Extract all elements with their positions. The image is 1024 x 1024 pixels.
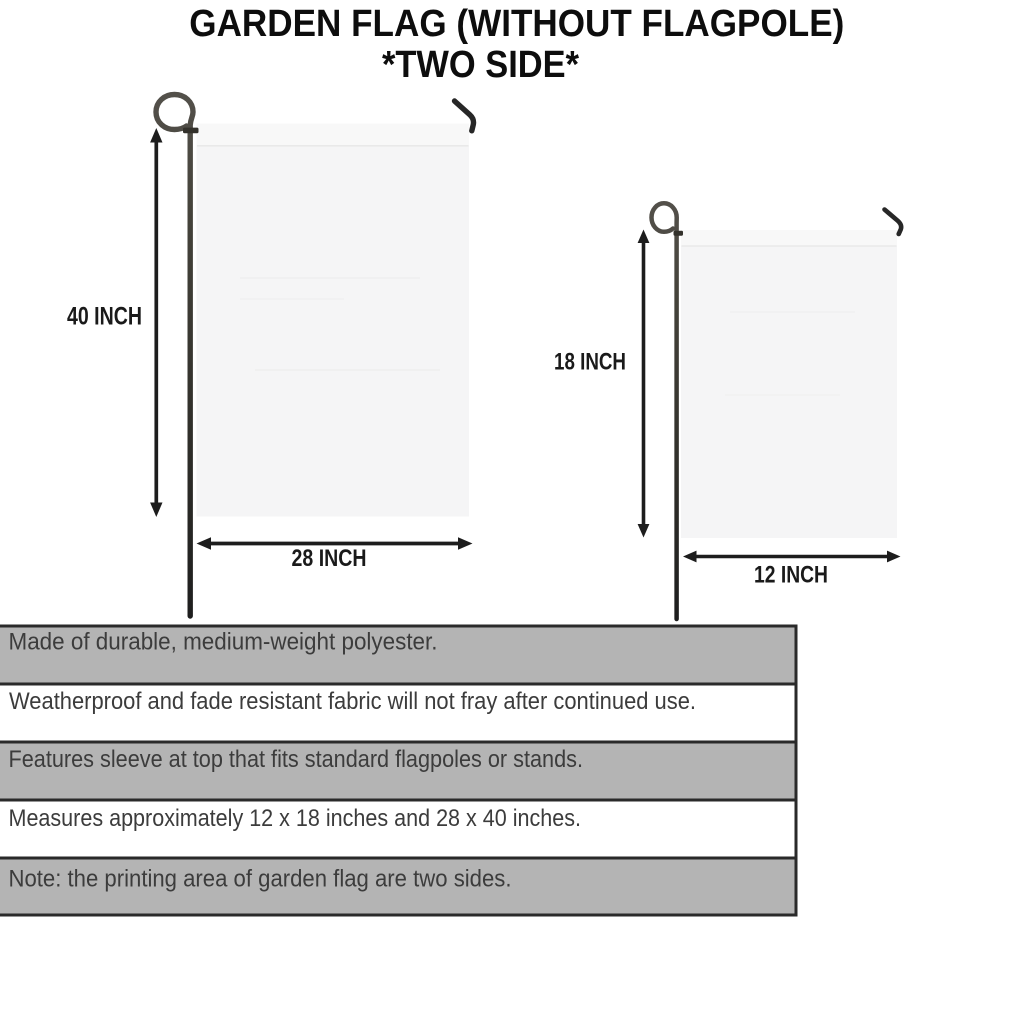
svg-text:Note: the printing area of gar: Note: the printing area of garden flag a…: [9, 866, 512, 893]
svg-text:GARDEN FLAG (WITHOUT FLAGPOLE): GARDEN FLAG (WITHOUT FLAGPOLE): [189, 3, 844, 45]
svg-text:Features sleeve at top that fi: Features sleeve at top that fits standar…: [9, 746, 584, 773]
svg-text:*TWO SIDE*: *TWO SIDE*: [382, 44, 579, 86]
svg-text:Made of durable, medium-weight: Made of durable, medium-weight polyester…: [9, 629, 438, 656]
svg-text:Weatherproof and fade resistan: Weatherproof and fade resistant fabric w…: [9, 688, 696, 715]
svg-text:12 INCH: 12 INCH: [754, 562, 828, 589]
svg-text:40 INCH: 40 INCH: [67, 303, 142, 331]
svg-text:Measures approximately 12 x 18: Measures approximately 12 x 18 inches an…: [9, 805, 582, 832]
svg-text:28 INCH: 28 INCH: [292, 545, 367, 572]
svg-text:18 INCH: 18 INCH: [554, 349, 626, 376]
